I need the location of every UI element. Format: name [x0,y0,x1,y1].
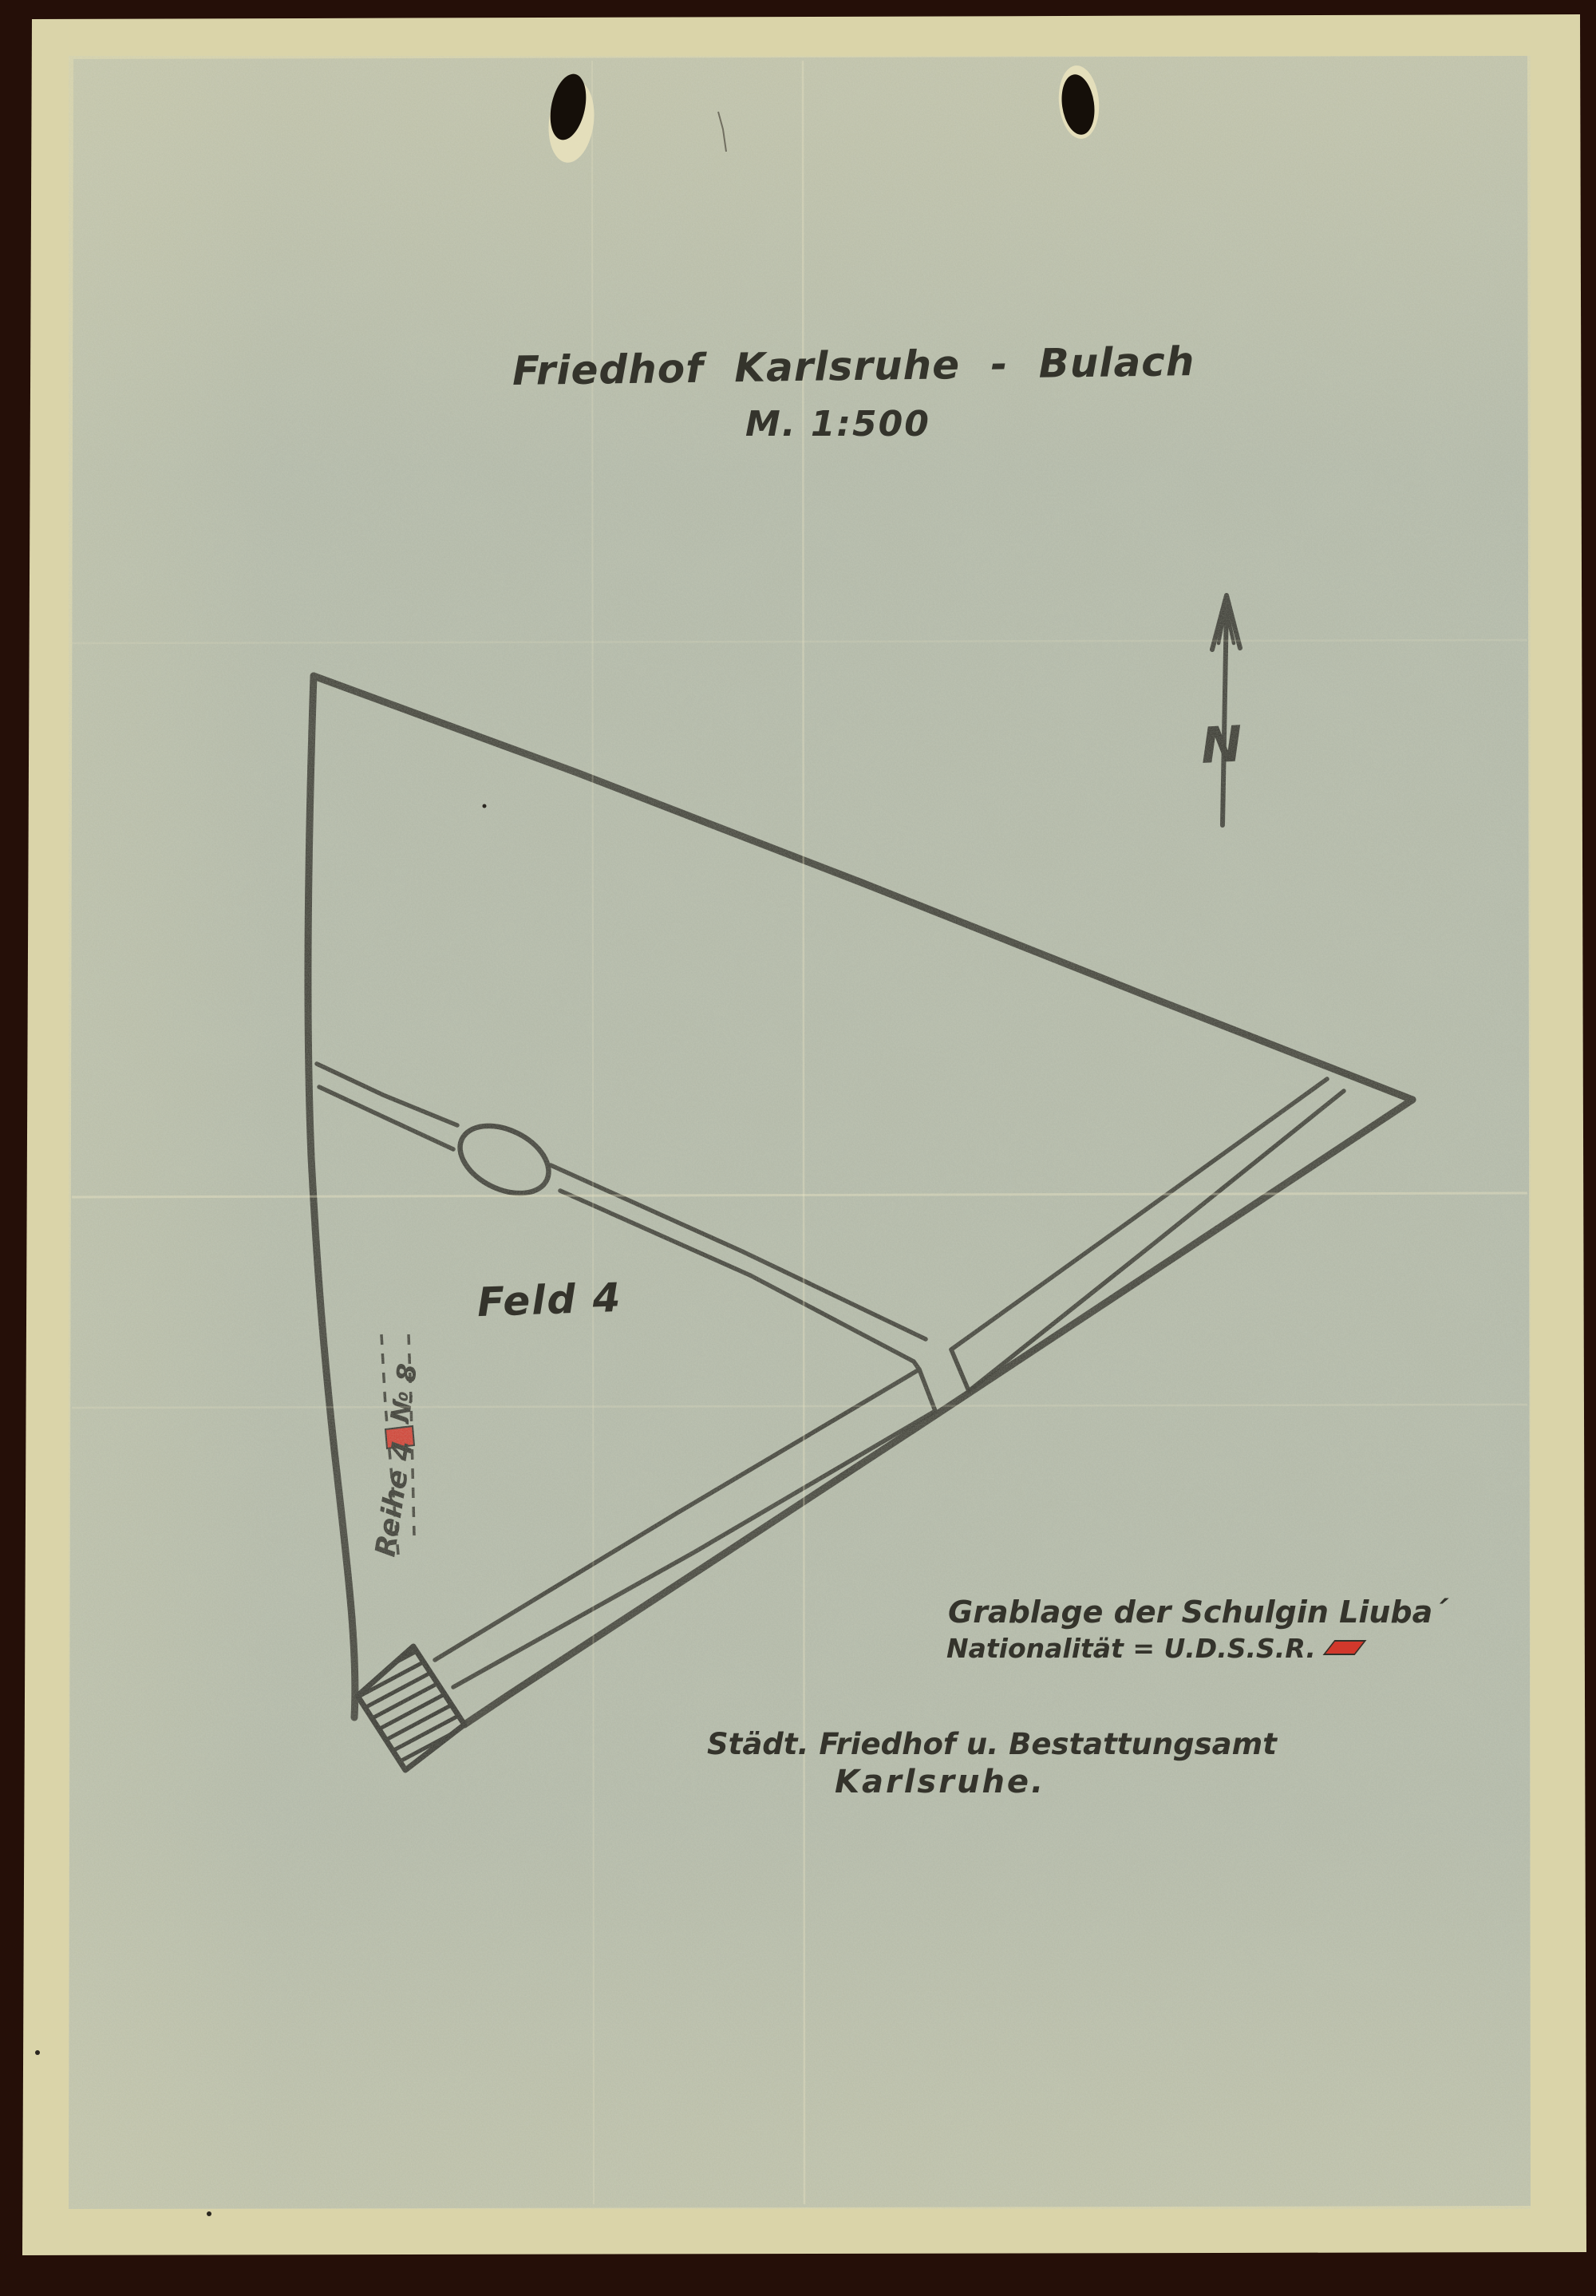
grave-note-line2: Nationalität = U.D.S.S.R. [946,1633,1361,1664]
field-label: Feld 4 [476,1274,622,1326]
grave-note-line1: Grablage der Schulgin Liuba´ [948,1595,1448,1630]
scanned-cemetery-plan: N № 8 Reihe 4 Fri [0,0,1596,2296]
office-name-line1: Städt. Friedhof u. Bestattungsamt [707,1727,1277,1761]
grave-note-line2-text: Nationalität = U.D.S.S.R. [946,1633,1316,1664]
ussr-red-marker [1322,1640,1366,1655]
office-name-line2: Karlsruhe. [835,1764,1045,1800]
plan-scale: M. 1:500 [745,404,930,445]
plan-title: Friedhof Karlsruhe - Bulach [512,338,1195,394]
